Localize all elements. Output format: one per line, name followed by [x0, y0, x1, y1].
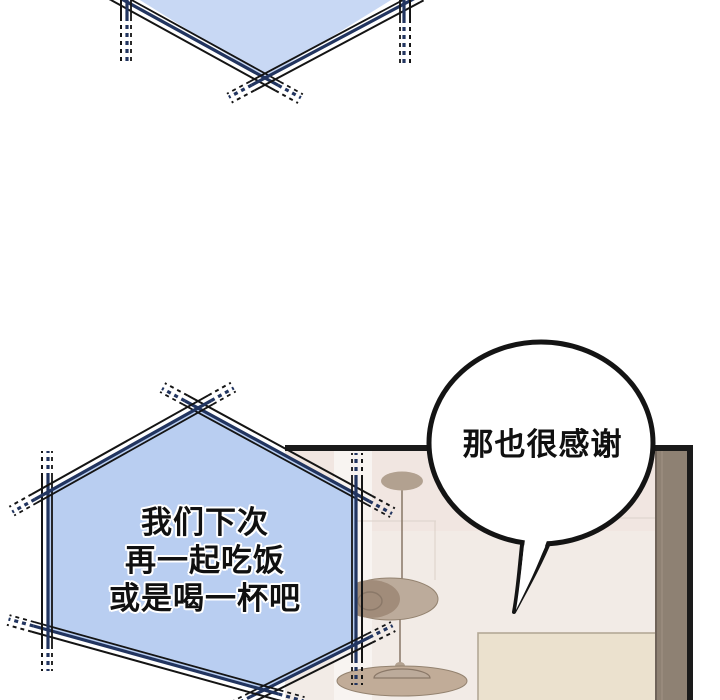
lamp-top-disc — [381, 472, 423, 491]
comic-page: 我们下次 再一起吃饭 或是喝一杯吧 那也很感谢 — [0, 0, 720, 700]
hexagon-partial-fill — [127, 0, 404, 78]
side-wall-strip — [655, 449, 688, 700]
canvas-frame — [478, 633, 664, 700]
invite-line-1: 我们下次 — [25, 504, 385, 542]
invite-line-3: 或是喝一杯吧 — [25, 580, 385, 618]
invite-line-2: 再一起吃饭 — [25, 542, 385, 580]
thanks-speech-text: 那也很感谢 — [425, 427, 660, 463]
speech-bubble-hexagon-partial — [88, 0, 443, 103]
invite-speech-text: 我们下次 再一起吃饭 或是喝一杯吧 — [25, 504, 385, 618]
panel-border-right — [687, 445, 693, 700]
